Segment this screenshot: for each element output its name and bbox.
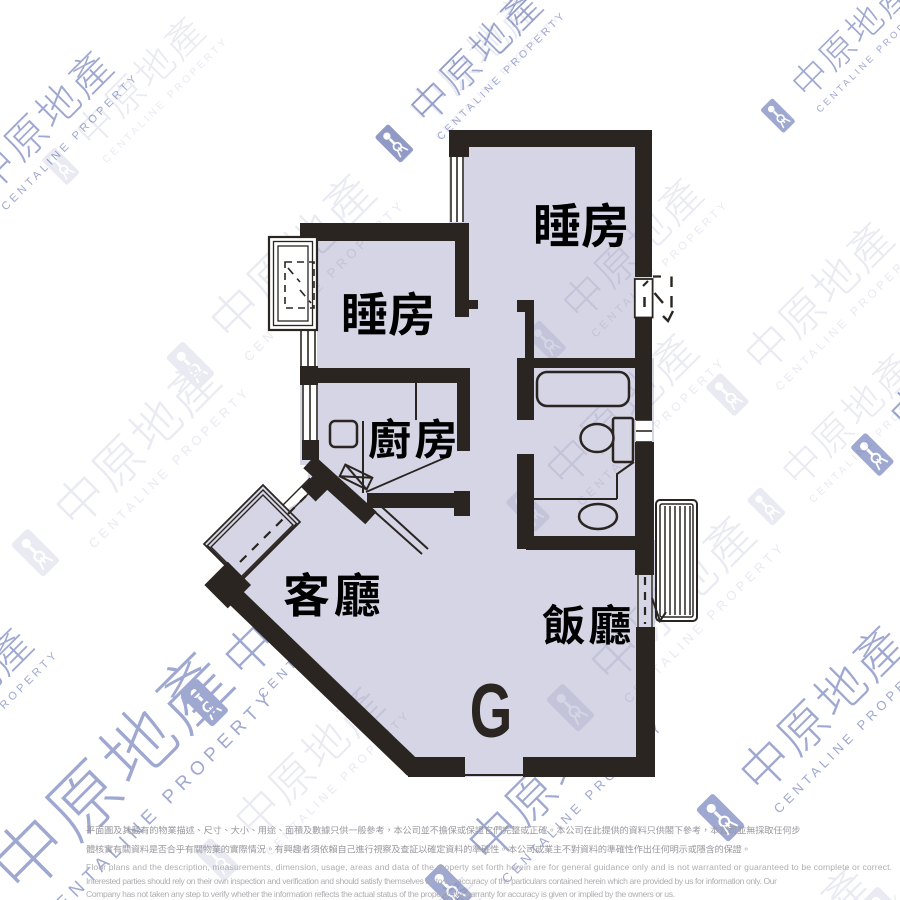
svg-text:Interested parties should rely: Interested parties should rely on their … [86,876,777,886]
svg-text:G: G [470,669,513,754]
svg-text:Company has not taken any step: Company has not taken any step to verify… [86,889,675,899]
svg-text:Floor plans and the descriptio: Floor plans and the description, measure… [86,862,892,872]
